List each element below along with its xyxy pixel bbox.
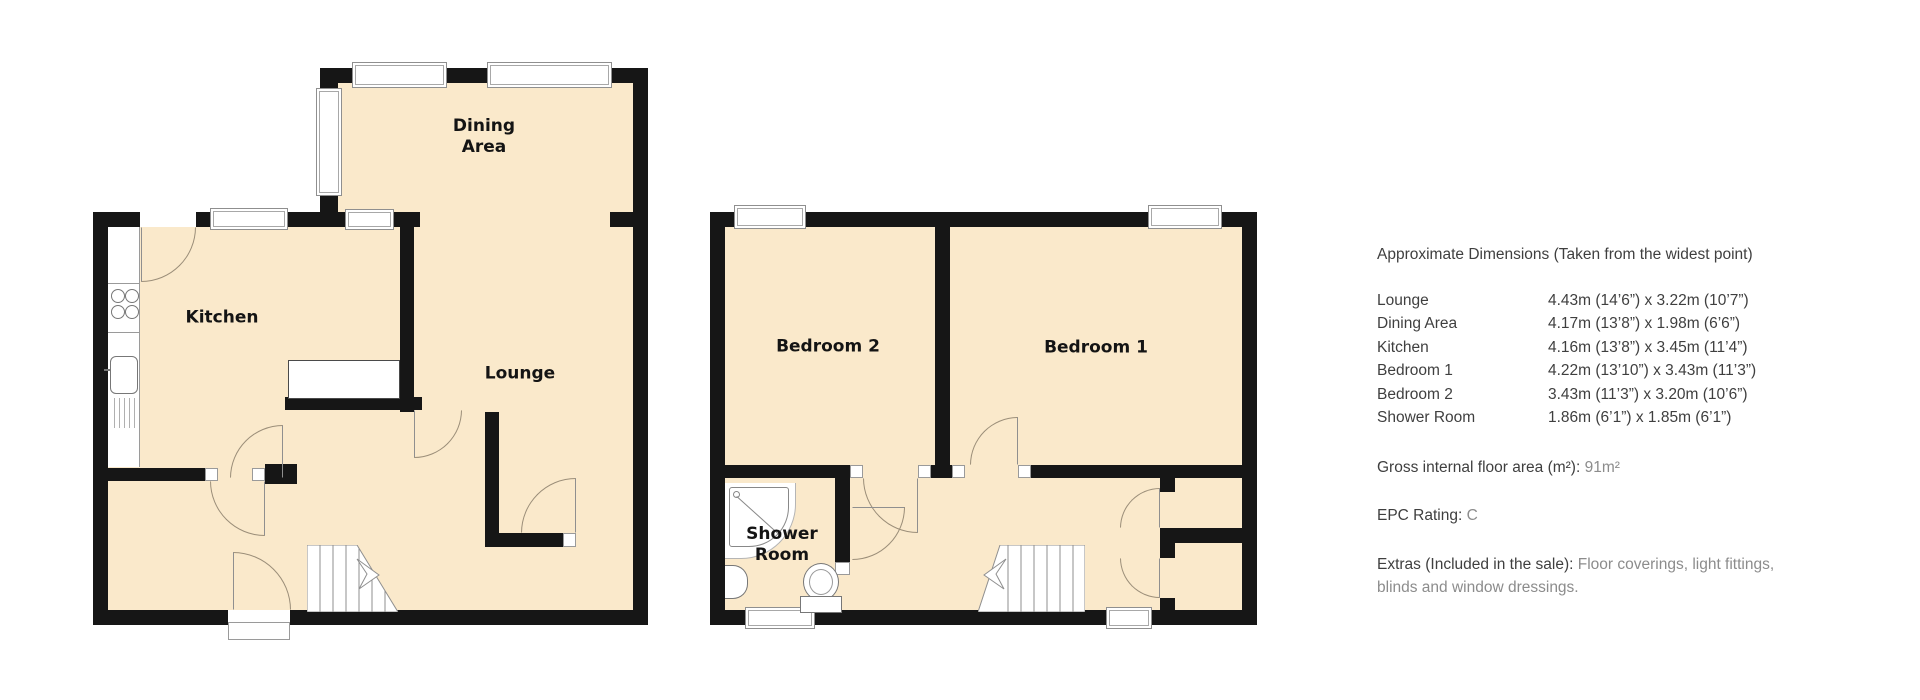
- room-label-bedroom-1: Bedroom 1: [1031, 338, 1161, 359]
- table-row: Bedroom 2 3.43m (11’3”) x 3.20m (10’6”): [1377, 383, 1756, 406]
- wall: [1160, 528, 1242, 543]
- wall: [1160, 598, 1175, 612]
- window: [1148, 205, 1222, 229]
- wall: [1242, 212, 1257, 625]
- toilet-bowl-inner: [809, 569, 833, 595]
- room-label-shower-room: Shower Room: [742, 524, 822, 566]
- wall: [1031, 465, 1242, 478]
- dimension-room: Lounge: [1377, 289, 1548, 312]
- wall: [935, 227, 950, 478]
- gross-area-value: 91m²: [1585, 459, 1620, 476]
- room-label-bedroom-2: Bedroom 2: [763, 337, 893, 358]
- table-row: Shower Room 1.86m (6’1”) x 1.85m (6’1”): [1377, 406, 1756, 429]
- dimension-size: 1.86m (6’1”) x 1.85m (6’1”): [1548, 406, 1731, 429]
- wall: [710, 212, 725, 625]
- toilet-cistern: [800, 596, 842, 613]
- extras-line: Extras (Included in the sale): Floor cov…: [1377, 553, 1777, 599]
- dimension-room: Kitchen: [1377, 336, 1548, 359]
- epc-line: EPC Rating: C: [1377, 507, 1478, 525]
- epc-value: C: [1467, 507, 1478, 524]
- window: [1106, 607, 1152, 629]
- wall: [1160, 478, 1175, 492]
- table-row: Lounge 4.43m (14’6”) x 3.22m (10’7”): [1377, 289, 1756, 312]
- table-row: Kitchen 4.16m (13’8”) x 3.45m (11’4”): [1377, 336, 1756, 359]
- wall: [725, 465, 850, 478]
- epc-label: EPC Rating:: [1377, 507, 1467, 524]
- dimensions-heading: Approximate Dimensions (Taken from the w…: [1377, 246, 1753, 264]
- floorplan-page: { "colors": { "room_fill": "#FAE9CB", "w…: [0, 0, 1920, 700]
- door-threshold: [1018, 465, 1031, 478]
- table-row: Bedroom 1 4.22m (13’10”) x 3.43m (11’3”): [1377, 359, 1756, 382]
- dimensions-table: Lounge 4.43m (14’6”) x 3.22m (10’7”) Din…: [1377, 289, 1756, 429]
- door-threshold: [918, 465, 931, 478]
- wall: [835, 478, 850, 562]
- extras-label: Extras (Included in the sale):: [1377, 556, 1578, 573]
- dimension-room: Bedroom 2: [1377, 383, 1548, 406]
- dimension-size: 4.17m (13’8”) x 1.98m (6’6”): [1548, 312, 1740, 335]
- dimension-size: 4.43m (14’6”) x 3.22m (10’7”): [1548, 289, 1749, 312]
- dimension-room: Shower Room: [1377, 406, 1548, 429]
- wall: [931, 465, 952, 478]
- dimension-size: 3.43m (11’3”) x 3.20m (10’6”): [1548, 383, 1748, 406]
- table-row: Dining Area 4.17m (13’8”) x 1.98m (6’6”): [1377, 312, 1756, 335]
- dimension-size: 4.22m (13’10”) x 3.43m (11’3”): [1548, 359, 1756, 382]
- dimension-room: Dining Area: [1377, 312, 1548, 335]
- gross-area-line: Gross internal floor area (m²): 91m²: [1377, 459, 1620, 477]
- wall: [1160, 543, 1175, 558]
- door-threshold: [850, 465, 863, 478]
- dimension-room: Bedroom 1: [1377, 359, 1548, 382]
- dimension-size: 4.16m (13’8”) x 3.45m (11’4”): [1548, 336, 1748, 359]
- door-threshold: [952, 465, 965, 478]
- gross-area-label: Gross internal floor area (m²):: [1377, 459, 1585, 476]
- staircase: [978, 545, 1085, 612]
- window: [734, 205, 806, 229]
